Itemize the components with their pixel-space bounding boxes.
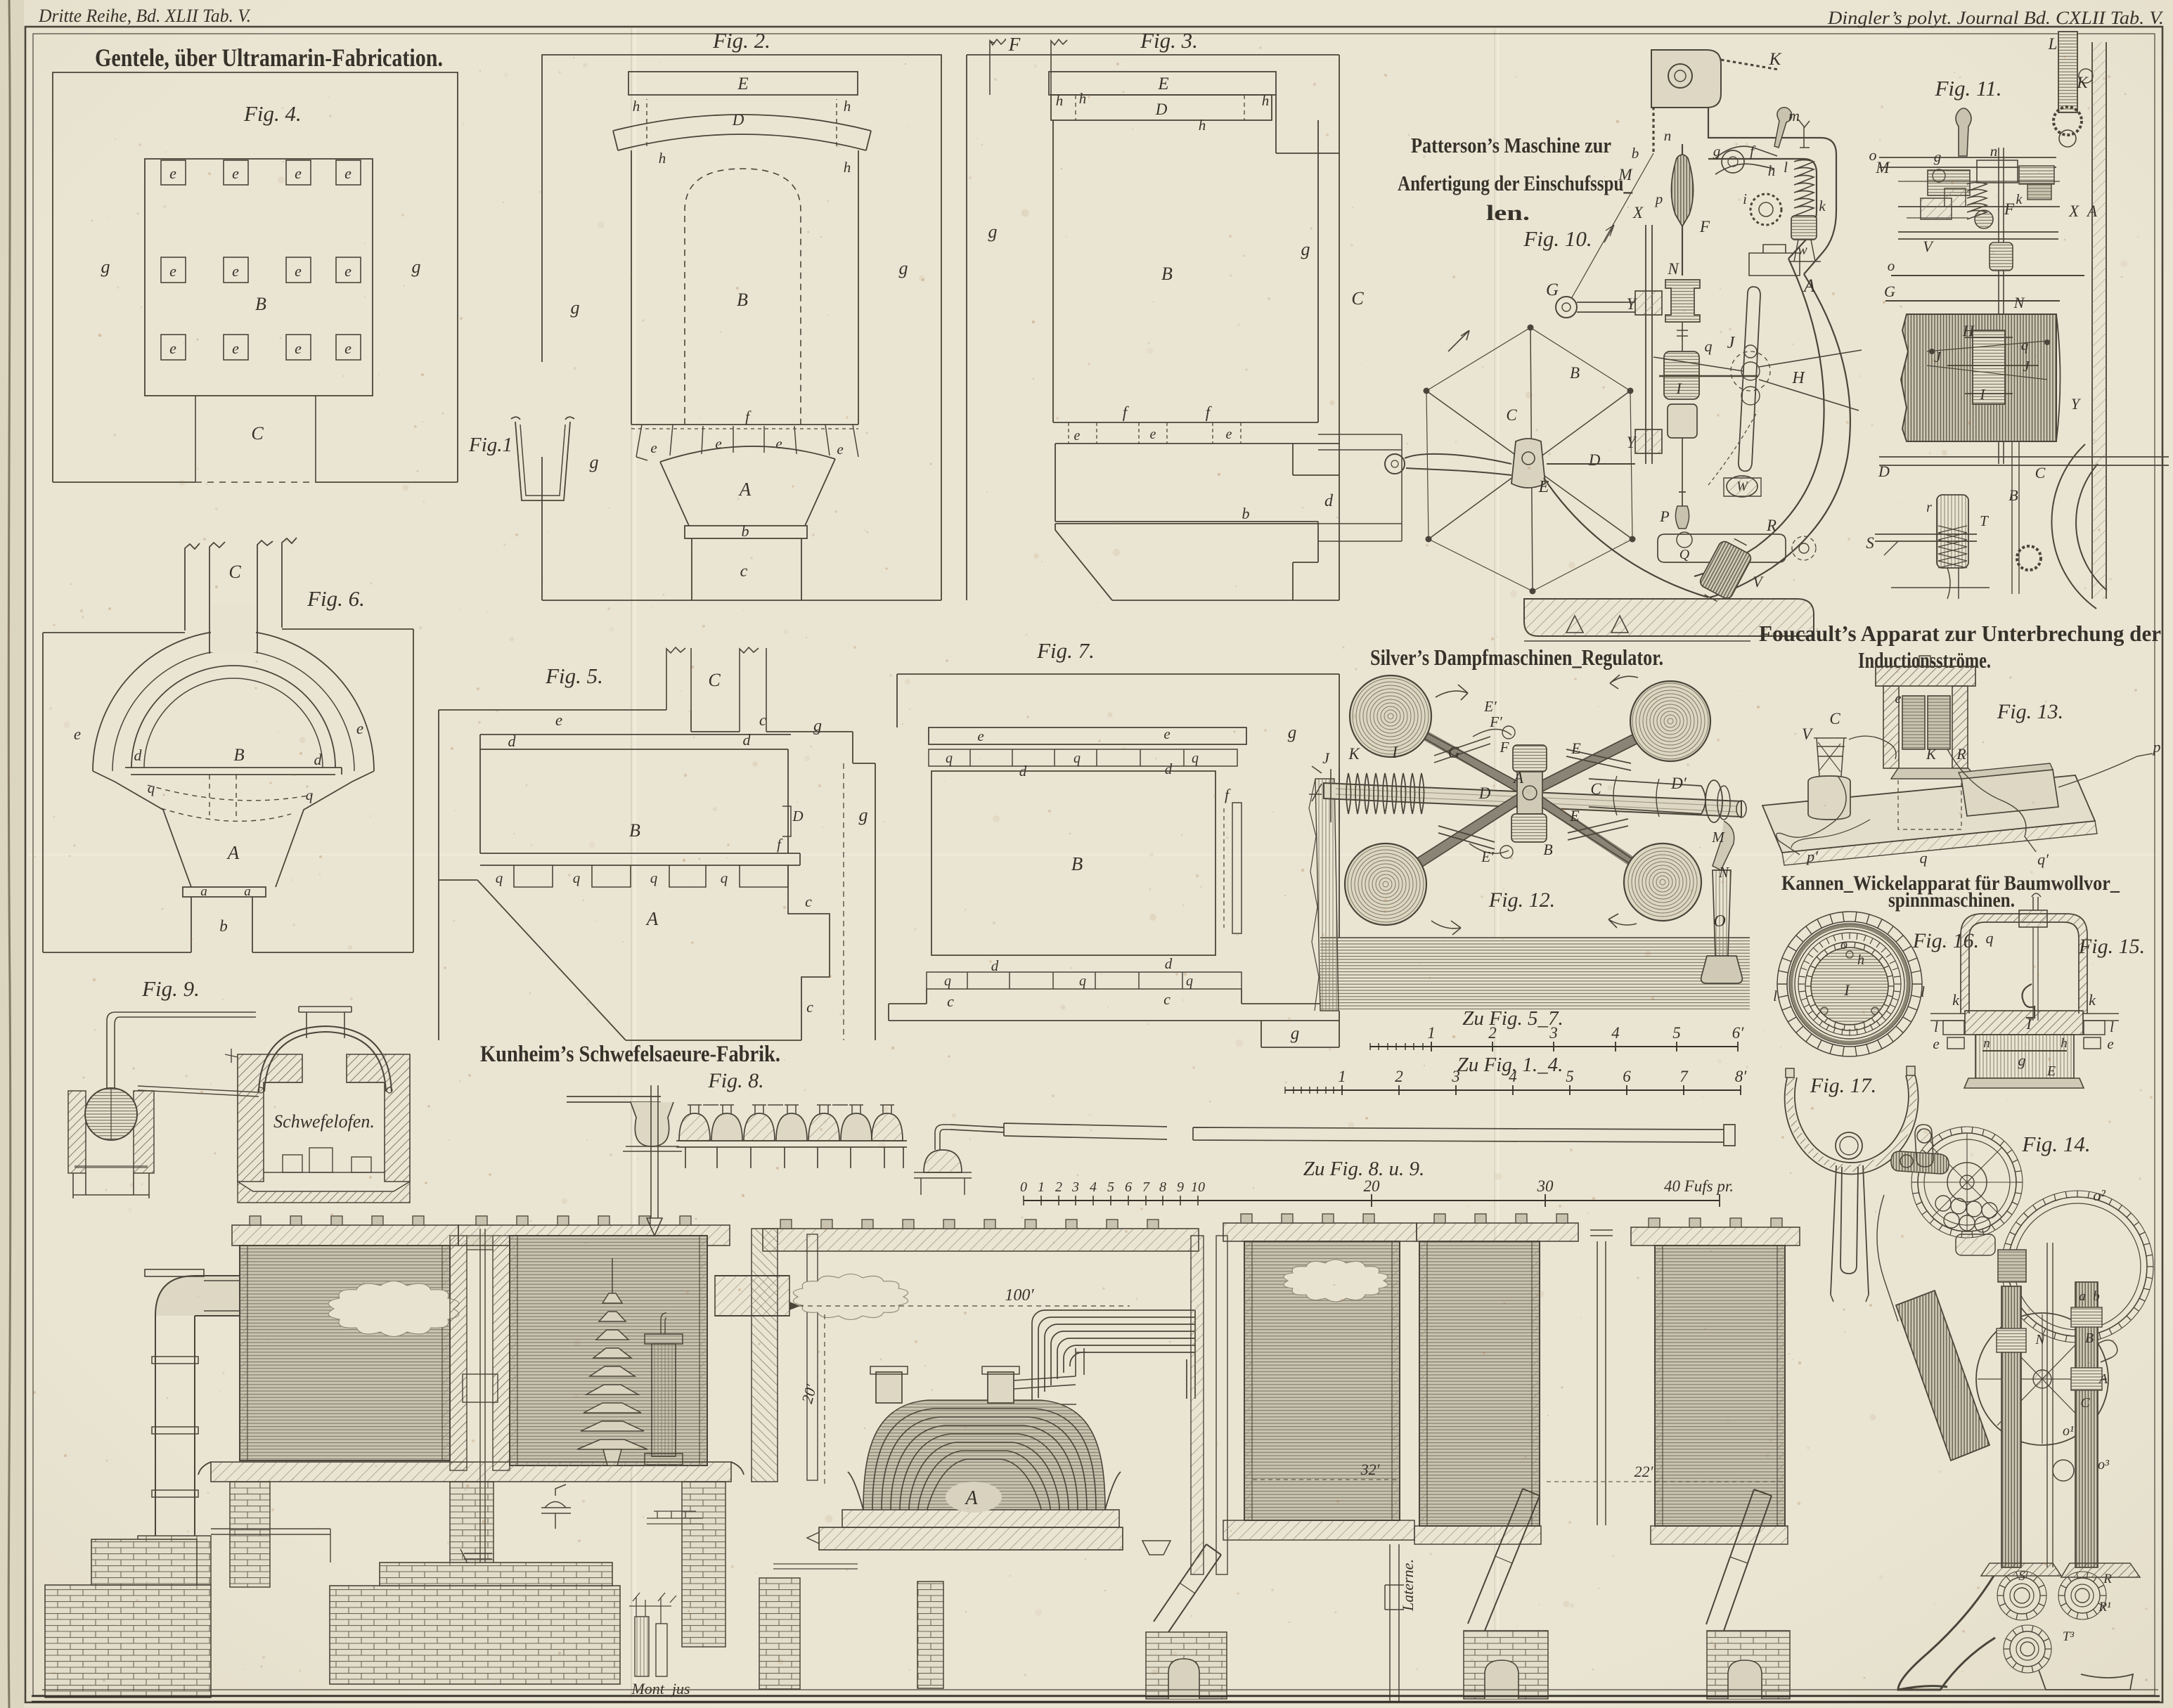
svg-text:b: b bbox=[742, 522, 749, 540]
svg-text:e: e bbox=[2107, 1035, 2113, 1052]
svg-text:F′: F′ bbox=[1489, 713, 1502, 730]
svg-text:Fig. 13.: Fig. 13. bbox=[1997, 700, 2063, 723]
svg-text:C: C bbox=[2035, 464, 2046, 481]
svg-text:n: n bbox=[1983, 1036, 1990, 1051]
svg-text:2: 2 bbox=[1488, 1024, 1497, 1042]
svg-text:e: e bbox=[232, 262, 239, 280]
svg-text:e: e bbox=[232, 339, 239, 357]
svg-text:Fig. 12.: Fig. 12. bbox=[1488, 888, 1555, 912]
svg-text:D: D bbox=[792, 808, 803, 824]
svg-text:B: B bbox=[2085, 1331, 2094, 1346]
svg-text:4: 4 bbox=[1090, 1179, 1097, 1195]
svg-text:M: M bbox=[1711, 829, 1725, 846]
svg-text:B: B bbox=[233, 746, 244, 765]
svg-text:5: 5 bbox=[1566, 1068, 1574, 1085]
svg-text:d: d bbox=[743, 731, 752, 749]
svg-text:X: X bbox=[1632, 204, 1644, 221]
svg-text:l: l bbox=[1773, 988, 1777, 1004]
svg-text:8: 8 bbox=[1159, 1179, 1166, 1195]
svg-text:q: q bbox=[1920, 849, 1928, 867]
svg-text:F: F bbox=[1699, 218, 1710, 235]
svg-text:Fig. 11.: Fig. 11. bbox=[1935, 76, 2002, 101]
svg-text:c: c bbox=[806, 998, 813, 1016]
svg-text:h: h bbox=[633, 98, 640, 115]
svg-text:q: q bbox=[650, 869, 658, 886]
svg-text:l: l bbox=[1784, 159, 1788, 176]
svg-text:3: 3 bbox=[1451, 1068, 1460, 1085]
svg-text:Y: Y bbox=[1627, 295, 1637, 313]
svg-text:A: A bbox=[738, 479, 752, 500]
svg-text:Q: Q bbox=[1679, 547, 1690, 562]
svg-text:K: K bbox=[1348, 745, 1360, 763]
svg-text:N: N bbox=[1667, 260, 1679, 278]
svg-text:F: F bbox=[1008, 34, 1021, 55]
svg-text:22′: 22′ bbox=[1634, 1463, 1654, 1480]
svg-text:B: B bbox=[1570, 364, 1580, 382]
svg-text:B: B bbox=[629, 820, 640, 841]
svg-text:q: q bbox=[306, 787, 314, 803]
svg-text:G: G bbox=[1546, 280, 1559, 299]
svg-text:Kunheim’s Schwefelsaeure-Fabri: Kunheim’s Schwefelsaeure-Fabrik. bbox=[480, 1042, 780, 1067]
svg-text:e: e bbox=[1163, 725, 1170, 742]
svg-text:h: h bbox=[1262, 92, 1270, 109]
svg-text:Fig. 3.: Fig. 3. bbox=[1140, 28, 1198, 53]
svg-text:e: e bbox=[837, 441, 843, 458]
svg-text:h: h bbox=[1199, 117, 1206, 134]
svg-text:e: e bbox=[232, 164, 239, 182]
svg-text:C: C bbox=[1506, 406, 1517, 424]
svg-text:e: e bbox=[169, 262, 176, 280]
svg-text:9: 9 bbox=[1177, 1179, 1184, 1195]
svg-text:F: F bbox=[1500, 739, 1509, 756]
svg-text:4: 4 bbox=[1611, 1024, 1620, 1042]
svg-text:g: g bbox=[1301, 239, 1310, 259]
svg-text:Fig. 8.: Fig. 8. bbox=[707, 1069, 763, 1092]
svg-text:e: e bbox=[344, 164, 352, 182]
svg-text:e: e bbox=[715, 435, 721, 452]
svg-text:P: P bbox=[1659, 507, 1669, 525]
svg-text:e: e bbox=[344, 262, 352, 280]
svg-text:g: g bbox=[571, 297, 580, 318]
svg-text:c: c bbox=[805, 893, 812, 910]
svg-text:e: e bbox=[1895, 691, 1902, 706]
svg-text:e: e bbox=[775, 435, 782, 452]
svg-text:E: E bbox=[1157, 75, 1168, 93]
svg-text:M: M bbox=[1618, 166, 1633, 183]
svg-text:30: 30 bbox=[1537, 1177, 1554, 1195]
svg-text:b: b bbox=[2093, 1289, 2100, 1304]
svg-text:H: H bbox=[1791, 369, 1805, 387]
svg-text:E′: E′ bbox=[1483, 698, 1497, 715]
svg-text:C: C bbox=[2080, 1395, 2090, 1411]
svg-text:Fig.1: Fig.1 bbox=[468, 434, 512, 456]
svg-text:b: b bbox=[1632, 145, 1639, 162]
svg-text:J: J bbox=[1322, 749, 1330, 767]
svg-text:A: A bbox=[1512, 769, 1524, 787]
svg-text:R¹: R¹ bbox=[2098, 1600, 2111, 1615]
svg-text:M: M bbox=[1875, 159, 1890, 176]
svg-text:6′: 6′ bbox=[1732, 1024, 1745, 1042]
svg-text:m: m bbox=[1788, 107, 1800, 124]
svg-text:B: B bbox=[737, 290, 748, 310]
svg-text:I: I bbox=[1391, 744, 1398, 761]
svg-text:a: a bbox=[200, 884, 207, 899]
svg-text:R: R bbox=[1766, 517, 1777, 534]
svg-text:1: 1 bbox=[1038, 1179, 1045, 1195]
svg-text:b: b bbox=[219, 917, 228, 935]
svg-text:S: S bbox=[1866, 534, 1874, 552]
svg-text:g: g bbox=[859, 805, 868, 825]
svg-text:q: q bbox=[721, 869, 728, 886]
svg-text:A: A bbox=[964, 1487, 978, 1509]
svg-text:B: B bbox=[1161, 264, 1173, 284]
svg-text:C: C bbox=[228, 562, 241, 582]
svg-text:Fig. 14.: Fig. 14. bbox=[2021, 1132, 2090, 1156]
svg-text:3: 3 bbox=[1071, 1179, 1079, 1195]
svg-text:e: e bbox=[169, 164, 176, 182]
svg-text:C: C bbox=[1829, 710, 1840, 727]
svg-text:c: c bbox=[947, 992, 954, 1010]
svg-text:q: q bbox=[946, 751, 953, 766]
svg-text:Mont_jus: Mont_jus bbox=[631, 1680, 690, 1697]
svg-text:H: H bbox=[1962, 322, 1975, 339]
svg-text:N: N bbox=[2013, 294, 2025, 311]
svg-text:7: 7 bbox=[1142, 1179, 1150, 1195]
svg-text:X: X bbox=[2068, 202, 2079, 220]
svg-text:q: q bbox=[944, 973, 951, 989]
svg-text:F: F bbox=[2004, 200, 2015, 218]
svg-text:e: e bbox=[356, 720, 363, 737]
svg-text:0: 0 bbox=[1020, 1179, 1027, 1195]
svg-text:g: g bbox=[1934, 148, 1942, 165]
svg-text:q: q bbox=[1186, 973, 1193, 989]
svg-text:2: 2 bbox=[1395, 1068, 1403, 1085]
svg-text:4: 4 bbox=[1509, 1068, 1517, 1085]
svg-text:q: q bbox=[496, 869, 503, 886]
svg-text:E: E bbox=[2046, 1063, 2056, 1079]
svg-text:G: G bbox=[1448, 744, 1460, 761]
svg-text:D: D bbox=[1478, 784, 1491, 802]
svg-text:o³: o³ bbox=[2098, 1457, 2110, 1473]
svg-text:h: h bbox=[1857, 952, 1864, 968]
svg-text:c: c bbox=[740, 562, 748, 581]
svg-text:e: e bbox=[295, 164, 302, 182]
svg-text:20: 20 bbox=[1364, 1177, 1381, 1195]
svg-text:e: e bbox=[295, 339, 302, 357]
svg-text:B: B bbox=[1071, 853, 1083, 874]
svg-text:g: g bbox=[590, 452, 599, 472]
svg-text:e: e bbox=[650, 439, 657, 456]
svg-text:W: W bbox=[1736, 479, 1749, 494]
svg-text:B: B bbox=[2008, 486, 2018, 504]
svg-text:D: D bbox=[1878, 462, 1890, 480]
svg-text:D: D bbox=[1588, 451, 1601, 469]
svg-text:g: g bbox=[988, 221, 998, 242]
svg-text:b: b bbox=[1242, 505, 1250, 522]
svg-text:Gentele, über Ultramarin-Fabri: Gentele, über Ultramarin-Fabrication. bbox=[95, 44, 443, 72]
svg-text:k: k bbox=[1819, 198, 1826, 214]
svg-text:g: g bbox=[2018, 1052, 2026, 1069]
svg-text:A: A bbox=[226, 842, 240, 863]
svg-text:5: 5 bbox=[1672, 1024, 1681, 1042]
svg-text:C: C bbox=[251, 423, 264, 444]
svg-text:10: 10 bbox=[1191, 1179, 1205, 1195]
svg-text:1: 1 bbox=[1427, 1024, 1436, 1042]
svg-text:h: h bbox=[1056, 92, 1064, 109]
svg-text:g: g bbox=[899, 258, 908, 278]
svg-text:o: o bbox=[1840, 937, 1848, 952]
svg-text:g: g bbox=[1713, 143, 1721, 160]
svg-text:p: p bbox=[1654, 190, 1663, 207]
svg-text:a: a bbox=[2079, 1289, 2086, 1304]
svg-text:100′: 100′ bbox=[1005, 1286, 1034, 1305]
svg-text:g: g bbox=[813, 717, 822, 735]
svg-text:N: N bbox=[2035, 1332, 2046, 1347]
svg-text:l: l bbox=[2110, 1018, 2114, 1035]
svg-text:h: h bbox=[1768, 162, 1776, 179]
svg-text:d: d bbox=[314, 751, 323, 768]
svg-text:g: g bbox=[412, 257, 421, 277]
svg-text:r: r bbox=[1926, 500, 1932, 515]
svg-text:e: e bbox=[555, 711, 562, 729]
svg-text:Laterne.: Laterne. bbox=[1399, 1559, 1417, 1612]
svg-text:g: g bbox=[1288, 723, 1297, 742]
svg-text:C: C bbox=[1351, 288, 1364, 309]
svg-text:d: d bbox=[1324, 492, 1334, 510]
svg-text:q: q bbox=[2021, 337, 2029, 354]
svg-text:Fig. 2.: Fig. 2. bbox=[712, 28, 770, 53]
svg-text:K: K bbox=[1926, 746, 1937, 763]
svg-text:Fig. 9.: Fig. 9. bbox=[141, 976, 200, 1001]
svg-text:E: E bbox=[1571, 739, 1581, 757]
svg-text:Fig. 4.: Fig. 4. bbox=[243, 101, 302, 126]
svg-text:d: d bbox=[1165, 955, 1173, 972]
svg-text:C: C bbox=[708, 670, 721, 690]
svg-text:q: q bbox=[148, 779, 155, 796]
svg-text:e: e bbox=[74, 725, 81, 743]
svg-text:D′: D′ bbox=[1670, 775, 1687, 792]
svg-text:c: c bbox=[1163, 990, 1171, 1008]
svg-text:q: q bbox=[1705, 337, 1713, 355]
svg-text:q: q bbox=[1986, 929, 1994, 947]
svg-text:d: d bbox=[134, 746, 143, 764]
svg-text:A: A bbox=[1803, 276, 1815, 296]
svg-text:Fig. 10.: Fig. 10. bbox=[1523, 226, 1592, 251]
svg-text:D: D bbox=[1155, 101, 1168, 118]
svg-text:e: e bbox=[295, 262, 302, 280]
svg-text:B: B bbox=[255, 294, 266, 314]
svg-text:q: q bbox=[1073, 751, 1081, 766]
svg-text:o¹: o¹ bbox=[2063, 1423, 2074, 1439]
svg-text:k: k bbox=[1952, 991, 1960, 1009]
svg-text:Fig. 7.: Fig. 7. bbox=[1036, 638, 1095, 663]
svg-text:len.: len. bbox=[1486, 200, 1530, 225]
svg-text:7: 7 bbox=[1679, 1068, 1689, 1085]
svg-text:K: K bbox=[1769, 50, 1782, 69]
svg-text:k: k bbox=[2089, 991, 2096, 1009]
svg-text:e: e bbox=[169, 339, 176, 357]
svg-text:R: R bbox=[1956, 745, 1966, 763]
svg-text:e: e bbox=[1074, 428, 1081, 444]
svg-text:2: 2 bbox=[1055, 1179, 1062, 1195]
svg-text:h: h bbox=[1079, 90, 1087, 107]
svg-text:Anfertigung der Einschufsspu_: Anfertigung der Einschufsspu_ bbox=[1398, 171, 1632, 195]
svg-text:A: A bbox=[645, 908, 659, 929]
svg-text:e: e bbox=[1933, 1035, 1939, 1052]
svg-text:J: J bbox=[1727, 334, 1736, 352]
svg-text:8′: 8′ bbox=[1735, 1068, 1748, 1085]
svg-text:Fig. 5.: Fig. 5. bbox=[545, 664, 603, 688]
svg-text:o²: o² bbox=[2093, 1186, 2106, 1204]
svg-text:G: G bbox=[1884, 283, 1895, 300]
svg-text:A: A bbox=[2098, 1371, 2108, 1387]
svg-text:d: d bbox=[508, 732, 517, 750]
svg-text:l: l bbox=[1921, 983, 1925, 1000]
svg-text:Fig. 6.: Fig. 6. bbox=[307, 586, 365, 611]
svg-text:h: h bbox=[844, 159, 851, 176]
svg-text:1: 1 bbox=[1338, 1068, 1346, 1085]
svg-text:e: e bbox=[977, 727, 984, 744]
svg-text:p: p bbox=[2152, 738, 2161, 756]
svg-text:Foucault’s Apparat zur Unterbr: Foucault’s Apparat zur Unterbrechung der bbox=[1759, 621, 2161, 646]
svg-text:Y: Y bbox=[1627, 434, 1637, 451]
svg-text:e: e bbox=[1226, 427, 1232, 442]
svg-text:c: c bbox=[759, 711, 766, 729]
svg-text:N: N bbox=[1718, 864, 1729, 881]
svg-text:h: h bbox=[659, 150, 666, 167]
svg-text:K: K bbox=[2076, 74, 2089, 91]
svg-text:n: n bbox=[1990, 143, 1998, 160]
svg-text:D: D bbox=[732, 111, 744, 129]
svg-text:B: B bbox=[1543, 841, 1552, 858]
svg-text:a: a bbox=[244, 884, 251, 899]
svg-text:d: d bbox=[1165, 761, 1173, 777]
svg-text:k: k bbox=[2016, 192, 2023, 207]
svg-text:q: q bbox=[1079, 973, 1086, 989]
svg-text:Fig. 15.: Fig. 15. bbox=[2078, 935, 2145, 958]
svg-text:h: h bbox=[844, 98, 851, 115]
svg-text:n: n bbox=[1664, 127, 1672, 144]
svg-text:6: 6 bbox=[1125, 1179, 1132, 1195]
svg-text:spinnmaschinen.: spinnmaschinen. bbox=[1888, 888, 2015, 912]
svg-text:6: 6 bbox=[1623, 1068, 1631, 1085]
svg-text:L: L bbox=[2048, 35, 2058, 53]
svg-text:32′: 32′ bbox=[1360, 1461, 1381, 1478]
svg-text:Schwefelofen.: Schwefelofen. bbox=[273, 1111, 375, 1132]
svg-text:A: A bbox=[2086, 202, 2098, 220]
svg-text:Dingler’s polyt. Journal Bd. C: Dingler’s polyt. Journal Bd. CXLII Tab. … bbox=[1827, 8, 2164, 28]
svg-text:g: g bbox=[1291, 1024, 1300, 1043]
svg-text:e: e bbox=[344, 339, 352, 357]
svg-text:T³: T³ bbox=[2063, 1629, 2075, 1644]
svg-text:T: T bbox=[1980, 512, 1989, 529]
svg-text:E: E bbox=[1569, 807, 1580, 824]
svg-text:g: g bbox=[101, 257, 110, 277]
svg-text:I: I bbox=[1980, 386, 1986, 403]
svg-text:O: O bbox=[1713, 912, 1725, 931]
svg-text:Patterson’s Maschine zur: Patterson’s Maschine zur bbox=[1411, 133, 1611, 157]
svg-text:40 Fufs pr.: 40 Fufs pr. bbox=[1664, 1177, 1734, 1195]
svg-text:q′: q′ bbox=[2037, 850, 2049, 868]
svg-text:q: q bbox=[1192, 751, 1199, 766]
svg-text:q: q bbox=[573, 869, 581, 886]
svg-text:Silver’s Dampfmaschinen_Regula: Silver’s Dampfmaschinen_Regulator. bbox=[1370, 645, 1663, 670]
svg-text:h: h bbox=[2061, 1036, 2068, 1051]
svg-text:Fig. 17.: Fig. 17. bbox=[1810, 1074, 1876, 1097]
svg-text:3: 3 bbox=[1549, 1024, 1558, 1042]
svg-text:e: e bbox=[1150, 427, 1156, 442]
svg-text:l: l bbox=[1934, 1018, 1938, 1035]
svg-text:o: o bbox=[1888, 257, 1895, 274]
svg-text:i: i bbox=[1743, 190, 1747, 207]
svg-text:Dritte Reihe, Bd. XLII Tab. V.: Dritte Reihe, Bd. XLII Tab. V. bbox=[38, 6, 251, 26]
svg-text:C: C bbox=[1590, 780, 1601, 798]
svg-text:E′: E′ bbox=[1481, 848, 1494, 865]
svg-text:p′: p′ bbox=[1805, 848, 1819, 865]
svg-text:E: E bbox=[737, 75, 748, 93]
svg-text:5: 5 bbox=[1107, 1179, 1114, 1195]
